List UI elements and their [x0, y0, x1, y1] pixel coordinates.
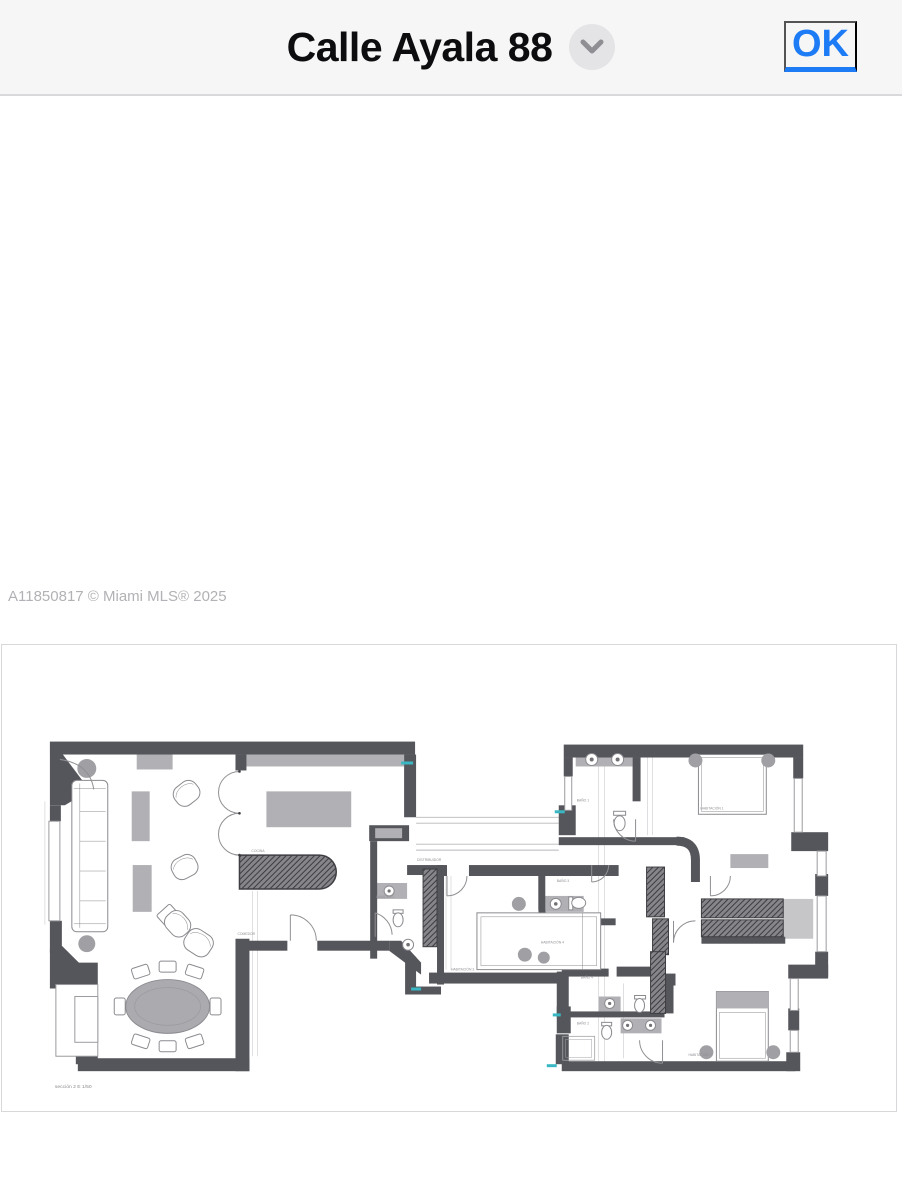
room-label-distribuidor: DISTRIBUIDOR — [417, 858, 442, 862]
mls-watermark: A11850817 © Miami MLS® 2025 — [8, 588, 227, 605]
ok-button[interactable]: OK — [784, 21, 857, 72]
dining-table — [114, 961, 221, 1052]
sofa — [72, 780, 108, 931]
room-label-habitacion-3: HABITACIÓN 3 — [451, 967, 474, 972]
room-label-comedor: COMEDOR — [237, 932, 255, 936]
room-label-lavadero: LAVADERO — [376, 895, 394, 899]
title-dropdown-button[interactable] — [569, 24, 615, 70]
room-label-habitacion-1: HABITACIÓN 1 — [700, 805, 723, 810]
room-label-bano-1: BAÑO 1 — [577, 797, 590, 802]
room-label-habitacion-4: HABITACIÓN 4 — [541, 940, 564, 945]
room-label-habitacion-2: HABITACIÓN 2 — [688, 1052, 711, 1057]
chevron-down-icon — [580, 39, 604, 55]
armchairs — [156, 777, 217, 961]
room-label-bano-2: BAÑO 2 — [577, 1020, 590, 1025]
room-label-bano-3: BAÑO 3 — [557, 878, 570, 883]
header-bar: Calle Ayala 88 OK — [0, 0, 902, 96]
room-label-bano-4: BAÑO 4 — [581, 975, 594, 980]
floor-plan-drawing: COCINA COMEDOR DISTRIBUIDOR LAVADERO HAB… — [2, 645, 896, 1111]
floor-plan-image[interactable]: COCINA COMEDOR DISTRIBUIDOR LAVADERO HAB… — [1, 644, 897, 1112]
plan-scale-caption: sección 2 E 1/50 — [55, 1084, 92, 1090]
page-title: Calle Ayala 88 — [287, 24, 553, 71]
room-label-cocina: COCINA — [251, 849, 265, 853]
